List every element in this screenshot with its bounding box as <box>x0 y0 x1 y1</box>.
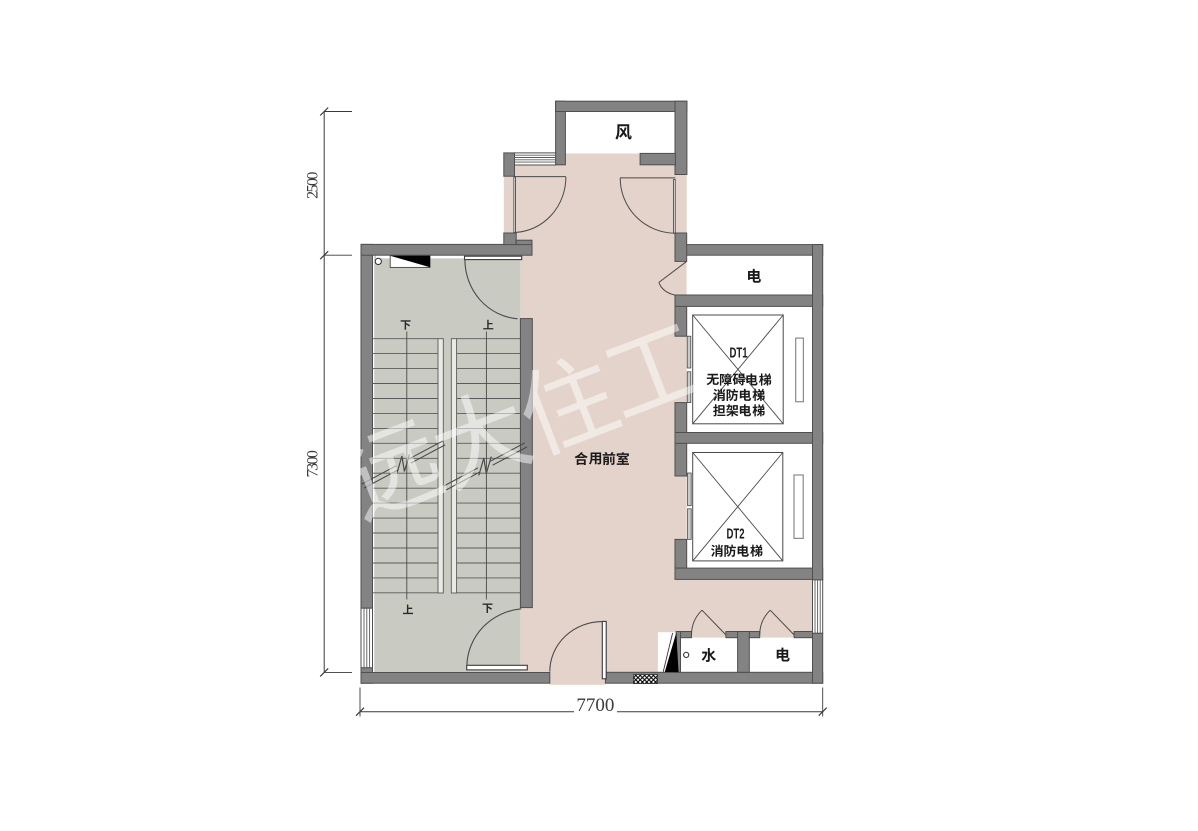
svg-text:7700: 7700 <box>576 695 614 716</box>
svg-text:2500: 2500 <box>304 172 321 199</box>
svg-text:DT1: DT1 <box>729 344 747 361</box>
svg-text:7300: 7300 <box>304 450 321 477</box>
svg-text:DT2: DT2 <box>726 526 744 543</box>
